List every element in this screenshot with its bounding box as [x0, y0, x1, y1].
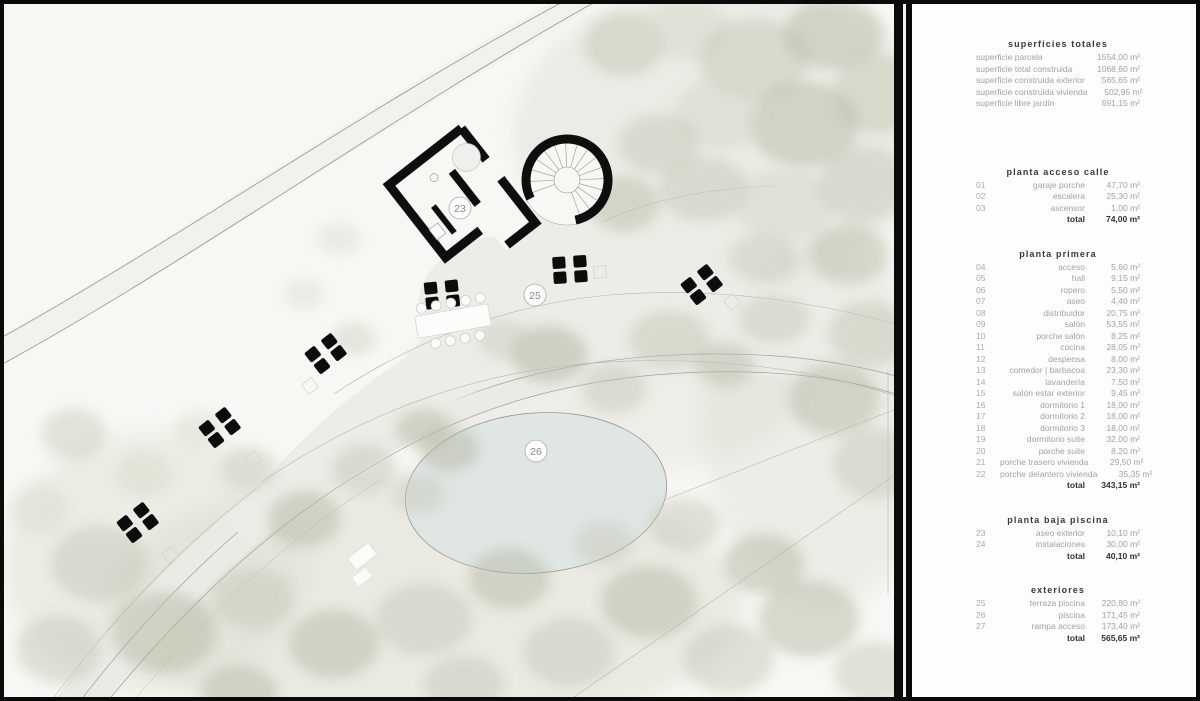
row-value: 40,10 m²: [1085, 551, 1140, 563]
row-value: 1,00 m²: [1085, 203, 1140, 215]
panel-section: superficies totalessuperficie parcela155…: [976, 38, 1140, 110]
row-value: 1068,60 m²: [1085, 64, 1140, 76]
surface-row: 10porche salón8,25 m²: [976, 331, 1140, 343]
surface-row: superficie construida vivienda502,95 m²: [976, 87, 1140, 99]
row-value: 35,35 m²: [1097, 469, 1152, 481]
row-label: acceso: [1000, 262, 1085, 274]
row-num: 05: [976, 273, 1000, 285]
row-label: piscina: [1000, 610, 1085, 622]
row-value: 691,15 m²: [1085, 98, 1140, 110]
row-value: 8,20 m²: [1085, 446, 1140, 458]
row-value: 4,40 m²: [1085, 296, 1140, 308]
surface-panel: superficies totalessuperficie parcela155…: [912, 4, 1196, 697]
marker-25: 25: [524, 284, 546, 306]
row-label: despensa: [1000, 354, 1085, 366]
marker-26-label: 26: [530, 446, 542, 458]
row-label: dormitorio 3: [1000, 423, 1085, 435]
total-row: total343,15 m²: [976, 480, 1140, 492]
row-value: 18,00 m²: [1085, 423, 1140, 435]
row-label: ascensor: [1000, 203, 1085, 215]
row-value: 28,05 m²: [1085, 342, 1140, 354]
panel-divider: [903, 4, 906, 697]
marker-23: 23: [449, 197, 471, 219]
row-label: garaje porche: [1000, 180, 1085, 192]
row-value: 29,50 m²: [1088, 457, 1143, 469]
row-num: 22: [976, 469, 1000, 481]
row-num: 25: [976, 598, 1000, 610]
surface-row: 06ropero5,50 m²: [976, 285, 1140, 297]
row-num: 06: [976, 285, 1000, 297]
row-label: salón: [1000, 319, 1085, 331]
surface-row: 26piscina171,45 m²: [976, 610, 1140, 622]
surface-row: 08distribuidor20,75 m²: [976, 308, 1140, 320]
site-plan: 23 25 26: [4, 4, 894, 697]
row-label: superficie parcela: [976, 52, 1085, 64]
row-value: 220,80 m²: [1085, 598, 1140, 610]
row-num: 18: [976, 423, 1000, 435]
row-value: 18,00 m²: [1085, 400, 1140, 412]
row-label: porche salón: [1000, 331, 1085, 343]
row-num: 20: [976, 446, 1000, 458]
row-value: 32,00 m²: [1085, 434, 1140, 446]
panel-section: planta acceso calle01garaje porche47,70 …: [976, 166, 1140, 226]
surface-row: 09salón53,55 m²: [976, 319, 1140, 331]
row-num: 26: [976, 610, 1000, 622]
row-num: 12: [976, 354, 1000, 366]
row-num: [976, 214, 1000, 226]
row-num: [976, 633, 1000, 645]
section-title: exteriores: [976, 584, 1140, 596]
row-label: comedor | barbacoa: [1000, 365, 1085, 377]
row-value: 25,30 m²: [1085, 191, 1140, 203]
surface-row: 01garaje porche47,70 m²: [976, 180, 1140, 192]
row-num: 19: [976, 434, 1000, 446]
row-num: 16: [976, 400, 1000, 412]
row-value: 8,00 m²: [1085, 354, 1140, 366]
row-label: escalera: [1000, 191, 1085, 203]
row-value: 171,45 m²: [1085, 610, 1140, 622]
section-title: planta acceso calle: [976, 166, 1140, 178]
row-num: 04: [976, 262, 1000, 274]
row-label: dormitorio 2: [1000, 411, 1085, 423]
surface-row: 02escalera25,30 m²: [976, 191, 1140, 203]
surface-row: 04acceso5,60 m²: [976, 262, 1140, 274]
site-plan-drawing: 23 25 26: [4, 4, 894, 697]
row-num: 13: [976, 365, 1000, 377]
marker-23-label: 23: [454, 203, 466, 215]
total-row: total40,10 m²: [976, 551, 1140, 563]
marker-25-label: 25: [529, 290, 541, 302]
surface-row: 24instalaciones30,00 m²: [976, 539, 1140, 551]
surface-row: 20porche suite8,20 m²: [976, 446, 1140, 458]
surface-row: 22porche delantero vivienda35,35 m²: [976, 469, 1140, 481]
row-label: rampa acceso: [1000, 621, 1085, 633]
row-label: instalaciones: [1000, 539, 1085, 551]
row-label: superficie libre jardín: [976, 98, 1085, 110]
surface-row: superficie construida exterior565,65 m²: [976, 75, 1140, 87]
row-num: 02: [976, 191, 1000, 203]
surface-row: 03ascensor1,00 m²: [976, 203, 1140, 215]
row-label: total: [1000, 480, 1085, 492]
section-title: superficies totales: [976, 38, 1140, 50]
total-row: total565,65 m²: [976, 633, 1140, 645]
row-num: [976, 551, 1000, 563]
surface-row: 16dormitorio 118,00 m²: [976, 400, 1140, 412]
row-value: 23,30 m²: [1085, 365, 1140, 377]
row-value: 5,60 m²: [1085, 262, 1140, 274]
surface-row: superficie parcela1554,00 m²: [976, 52, 1140, 64]
row-num: 17: [976, 411, 1000, 423]
row-value: 343,15 m²: [1085, 480, 1140, 492]
total-row: total74,00 m²: [976, 214, 1140, 226]
row-label: salón estar exterior: [1000, 388, 1085, 400]
row-label: superficie construida exterior: [976, 75, 1085, 87]
row-label: porche suite: [1000, 446, 1085, 458]
row-label: aseo exterior: [1000, 528, 1085, 540]
surface-row: 19dormitorio suite32,00 m²: [976, 434, 1140, 446]
row-label: lavandería: [1000, 377, 1085, 389]
surface-row: 14lavandería7,50 m²: [976, 377, 1140, 389]
surface-row: 11cocina28,05 m²: [976, 342, 1140, 354]
row-value: 18,00 m²: [1085, 411, 1140, 423]
row-value: 10,10 m²: [1085, 528, 1140, 540]
row-label: cocina: [1000, 342, 1085, 354]
row-value: 565,65 m²: [1085, 75, 1140, 87]
row-label: superficie total construida: [976, 64, 1085, 76]
row-label: ropero: [1000, 285, 1085, 297]
row-num: 11: [976, 342, 1000, 354]
row-value: 20,75 m²: [1085, 308, 1140, 320]
row-label: total: [1000, 214, 1085, 226]
row-value: 565,65 m²: [1085, 633, 1140, 645]
section-title: planta primera: [976, 248, 1140, 260]
row-value: 7,50 m²: [1085, 377, 1140, 389]
row-value: 502,95 m²: [1088, 87, 1143, 99]
row-num: 08: [976, 308, 1000, 320]
row-value: 30,00 m²: [1085, 539, 1140, 551]
row-label: total: [1000, 551, 1085, 563]
panel-section: planta baja piscina23aseo exterior10,10 …: [976, 514, 1140, 563]
row-num: [976, 480, 1000, 492]
surface-row: 21porche trasero vivienda29,50 m²: [976, 457, 1140, 469]
row-value: 5,50 m²: [1085, 285, 1140, 297]
surface-row: 18dormitorio 318,00 m²: [976, 423, 1140, 435]
surface-row: 27rampa acceso173,40 m²: [976, 621, 1140, 633]
row-num: 27: [976, 621, 1000, 633]
row-label: porche delantero vivienda: [1000, 469, 1097, 481]
surface-row: 23aseo exterior10,10 m²: [976, 528, 1140, 540]
surface-row: superficie libre jardín691,15 m²: [976, 98, 1140, 110]
row-label: dormitorio suite: [1000, 434, 1085, 446]
row-num: 23: [976, 528, 1000, 540]
row-label: distribuidor: [1000, 308, 1085, 320]
row-num: 24: [976, 539, 1000, 551]
surface-row: superficie total construida1068,60 m²: [976, 64, 1140, 76]
row-label: aseo: [1000, 296, 1085, 308]
row-num: 09: [976, 319, 1000, 331]
row-value: 9,45 m²: [1085, 388, 1140, 400]
row-label: superficie construida vivienda: [976, 87, 1088, 99]
surface-row: 25terraza piscina220,80 m²: [976, 598, 1140, 610]
row-num: 01: [976, 180, 1000, 192]
row-num: 07: [976, 296, 1000, 308]
row-value: 47,70 m²: [1085, 180, 1140, 192]
panel-section: planta primera04acceso5,60 m²05hall9,15 …: [976, 248, 1140, 492]
surface-row: 15salón estar exterior9,45 m²: [976, 388, 1140, 400]
row-value: 74,00 m²: [1085, 214, 1140, 226]
surface-row: 13comedor | barbacoa23,30 m²: [976, 365, 1140, 377]
marker-26: 26: [525, 440, 547, 462]
row-num: 10: [976, 331, 1000, 343]
section-title: planta baja piscina: [976, 514, 1140, 526]
row-label: total: [1000, 633, 1085, 645]
row-label: porche trasero vivienda: [1000, 457, 1088, 469]
row-label: dormitorio 1: [1000, 400, 1085, 412]
spiral-staircase: [522, 135, 612, 225]
row-value: 53,55 m²: [1085, 319, 1140, 331]
surface-row: 07aseo4,40 m²: [976, 296, 1140, 308]
row-num: 14: [976, 377, 1000, 389]
row-value: 8,25 m²: [1085, 331, 1140, 343]
panel-section: exteriores25terraza piscina220,80 m²26pi…: [976, 584, 1140, 644]
row-num: 03: [976, 203, 1000, 215]
surface-row: 12despensa8,00 m²: [976, 354, 1140, 366]
surface-row: 05hall9,15 m²: [976, 273, 1140, 285]
row-label: hall: [1000, 273, 1085, 285]
row-num: 15: [976, 388, 1000, 400]
row-value: 173,40 m²: [1085, 621, 1140, 633]
row-value: 9,15 m²: [1085, 273, 1140, 285]
surface-row: 17dormitorio 218,00 m²: [976, 411, 1140, 423]
row-num: 21: [976, 457, 1000, 469]
row-label: terraza piscina: [1000, 598, 1085, 610]
row-value: 1554,00 m²: [1085, 52, 1140, 64]
